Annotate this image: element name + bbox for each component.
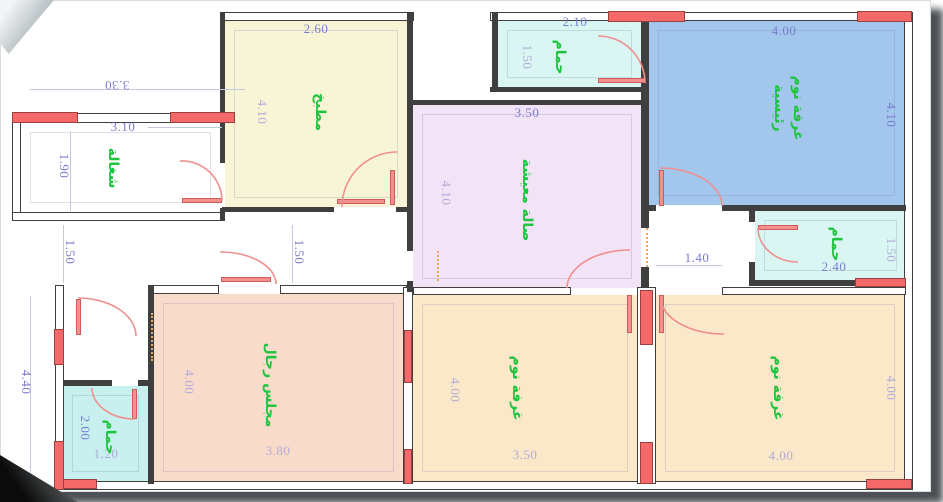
room-label-bathroom-left: حمام: [100, 407, 120, 467]
dimension-label: 4.00: [884, 366, 898, 410]
dimension-label: 4.10: [255, 90, 269, 134]
door-arc-majlis: [220, 252, 276, 284]
door-arc-bathroom-right: [758, 228, 798, 262]
dimension-label: 3.50: [503, 448, 547, 462]
room-label-maid: شغالة: [103, 128, 123, 208]
room-label-bedroom-right: غرفة نوم: [768, 343, 788, 433]
door-arc-maid: [180, 161, 222, 201]
dimension-label: 4.40: [19, 360, 33, 404]
room-label-master-bedroom: غرفة نوم رئيسية: [767, 73, 807, 143]
dimension-label: 3.50: [505, 106, 549, 120]
dimension-label: 1.40: [675, 251, 719, 265]
dimension-label: 4.00: [448, 368, 462, 412]
dimension-label: 4.00: [759, 449, 803, 463]
dimension-label: 4.10: [439, 171, 453, 215]
dimension-label: 2.60: [294, 22, 338, 36]
dimension-label: 4.10: [884, 93, 898, 137]
dimension-label: 1.50: [884, 228, 898, 272]
room-label-living: صالة معيشة: [517, 145, 537, 255]
room-label-line2: رئيسية: [769, 73, 788, 143]
door-arc-bedroom-right: [661, 298, 724, 334]
dimension-label: 4.00: [762, 24, 806, 38]
room-label-majlis: مجلس رجال: [260, 330, 280, 440]
dimension-label: 3.30: [95, 78, 139, 92]
floor-plan-canvas: 3.30 3.10 1.90 2.60 4.10 2.10 1.50 4.00 …: [0, 0, 943, 502]
room-label-kitchen: مطبخ: [310, 77, 330, 147]
dimension-label: 4.00: [182, 360, 196, 404]
dimension-label: 3.80: [256, 444, 300, 458]
room-label-bedroom-middle: غرفة نوم: [507, 343, 527, 433]
door-arc-entry: [78, 298, 136, 336]
dimension-label: 1.90: [57, 144, 71, 188]
room-label-bathroom-top: حمام: [550, 27, 570, 87]
room-label-bathroom-right: حمام: [826, 214, 846, 274]
dimension-label: 2.00: [78, 406, 92, 450]
door-arc-bedroom-middle: [567, 250, 630, 288]
dimension-label: 1.50: [63, 230, 77, 274]
door-arc-bathroom-top: [598, 36, 645, 83]
dimension-label: 1.50: [292, 230, 306, 274]
door-arc-kitchen: [342, 152, 397, 207]
dimension-label: 1.50: [520, 35, 534, 79]
room-label-line1: غرفة نوم: [788, 73, 807, 143]
door-arc-master: [660, 168, 722, 206]
